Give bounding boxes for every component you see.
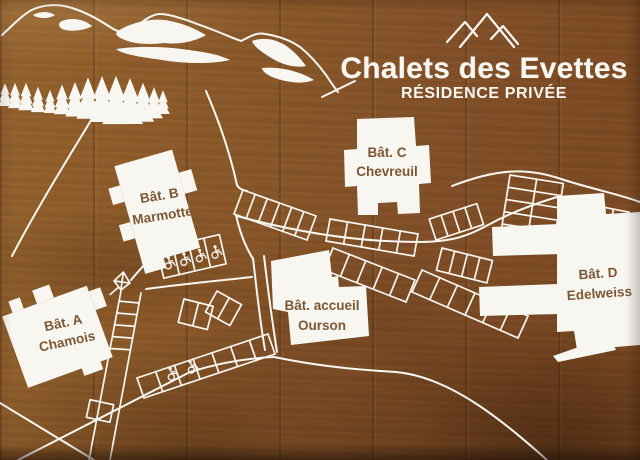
sign-title: Chalets des Evettes <box>330 52 638 86</box>
building-c-label-line1: Bât. C <box>367 145 406 160</box>
building-accueil-label-line1: Bât. accueil <box>284 298 359 313</box>
mountain-range-icon <box>2 5 355 97</box>
wheelchair-icon <box>194 248 206 263</box>
wheelchair-icon <box>179 251 191 266</box>
parking-small-east-2 <box>436 248 492 283</box>
parking-small-east-1 <box>429 204 483 240</box>
building-c-label-line2: Chevreuil <box>356 164 418 179</box>
building-accueil-label-line2: Ourson <box>298 318 346 333</box>
parking-small-center-2 <box>205 291 241 326</box>
chalet-map-sign: Bât. A Chamois Bât. B Marmotte Bât. C Ch… <box>0 0 640 460</box>
building-a-shape <box>0 268 127 395</box>
building-d-label-line1: Bât. D <box>578 265 618 283</box>
pine-forest-icon <box>0 76 170 124</box>
sign-subtitle: RÉSIDENCE PRIVÉE <box>330 85 638 103</box>
wheelchair-icon <box>210 244 222 259</box>
three-peaks-mountain-icon <box>447 14 518 47</box>
